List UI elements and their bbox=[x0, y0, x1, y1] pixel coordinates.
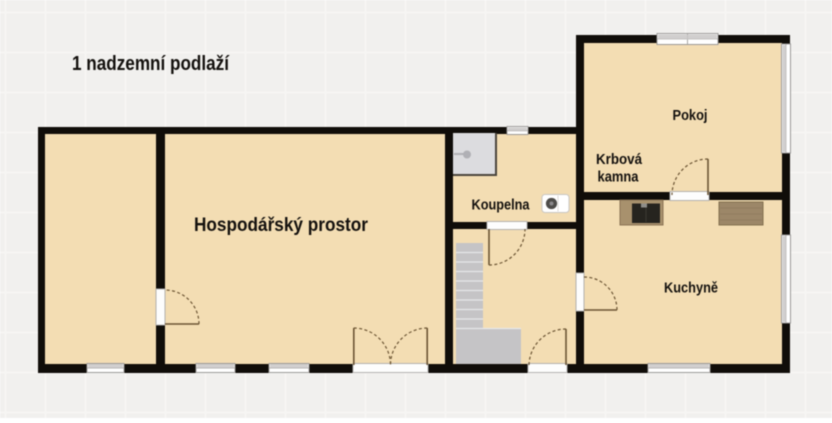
svg-text:Pokoj: Pokoj bbox=[673, 108, 708, 124]
svg-text:kamna: kamna bbox=[598, 169, 640, 185]
svg-text:Kuchyně: Kuchyně bbox=[664, 280, 718, 297]
svg-text:Hospodářský prostor: Hospodářský prostor bbox=[194, 215, 369, 236]
svg-text:Koupelna: Koupelna bbox=[472, 197, 531, 214]
svg-text:1 nadzemní podlaží: 1 nadzemní podlaží bbox=[72, 53, 230, 75]
svg-text:Krbová: Krbová bbox=[596, 152, 643, 168]
